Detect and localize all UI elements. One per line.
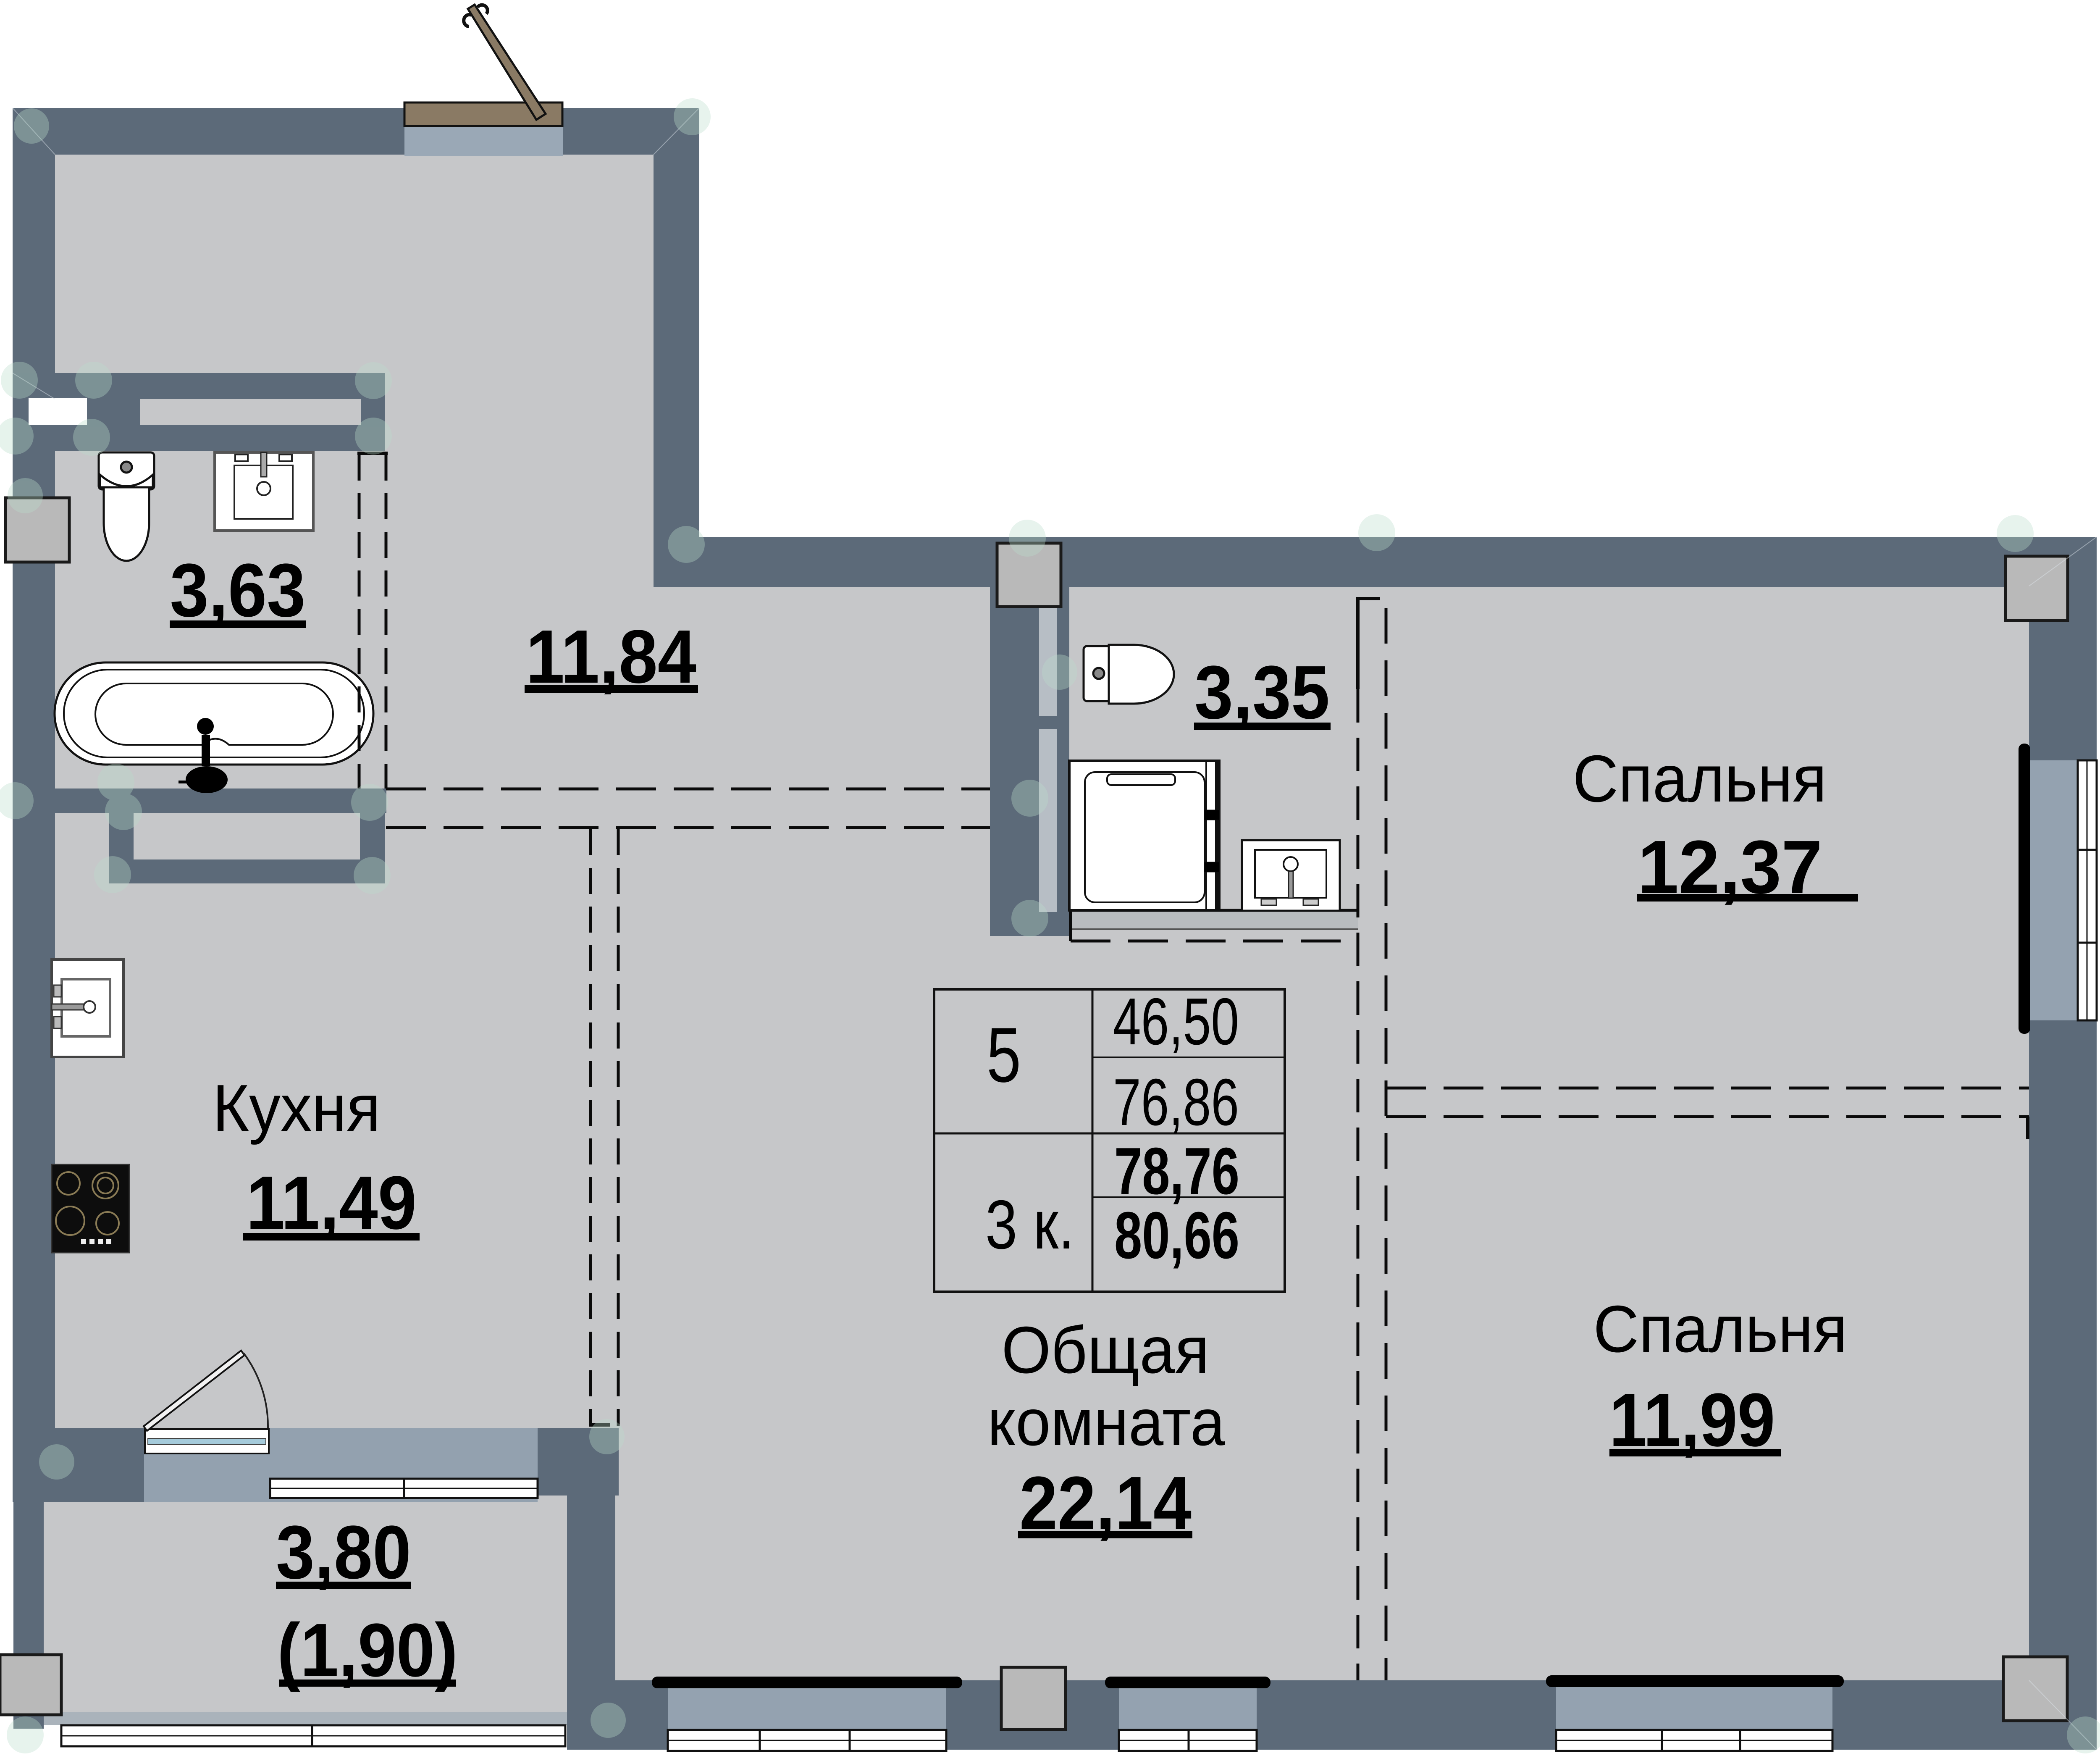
svg-text:46,50: 46,50: [1113, 985, 1239, 1059]
svg-text:Спальня: Спальня: [1573, 742, 1827, 816]
svg-text:Общая: Общая: [1002, 1313, 1210, 1387]
svg-text:3,63: 3,63: [170, 548, 306, 633]
svg-text:Спальня: Спальня: [1593, 1292, 1848, 1366]
svg-text:76,86: 76,86: [1113, 1065, 1239, 1139]
svg-text:3 к.: 3 к.: [985, 1186, 1074, 1263]
svg-text:Кухня: Кухня: [213, 1071, 381, 1145]
svg-text:5: 5: [987, 1012, 1021, 1099]
svg-text:3,35: 3,35: [1194, 650, 1330, 735]
svg-text:78,76: 78,76: [1114, 1134, 1239, 1208]
svg-text:11,49: 11,49: [246, 1161, 417, 1245]
svg-text:80,66: 80,66: [1114, 1199, 1239, 1272]
svg-text:комната: комната: [987, 1385, 1225, 1459]
